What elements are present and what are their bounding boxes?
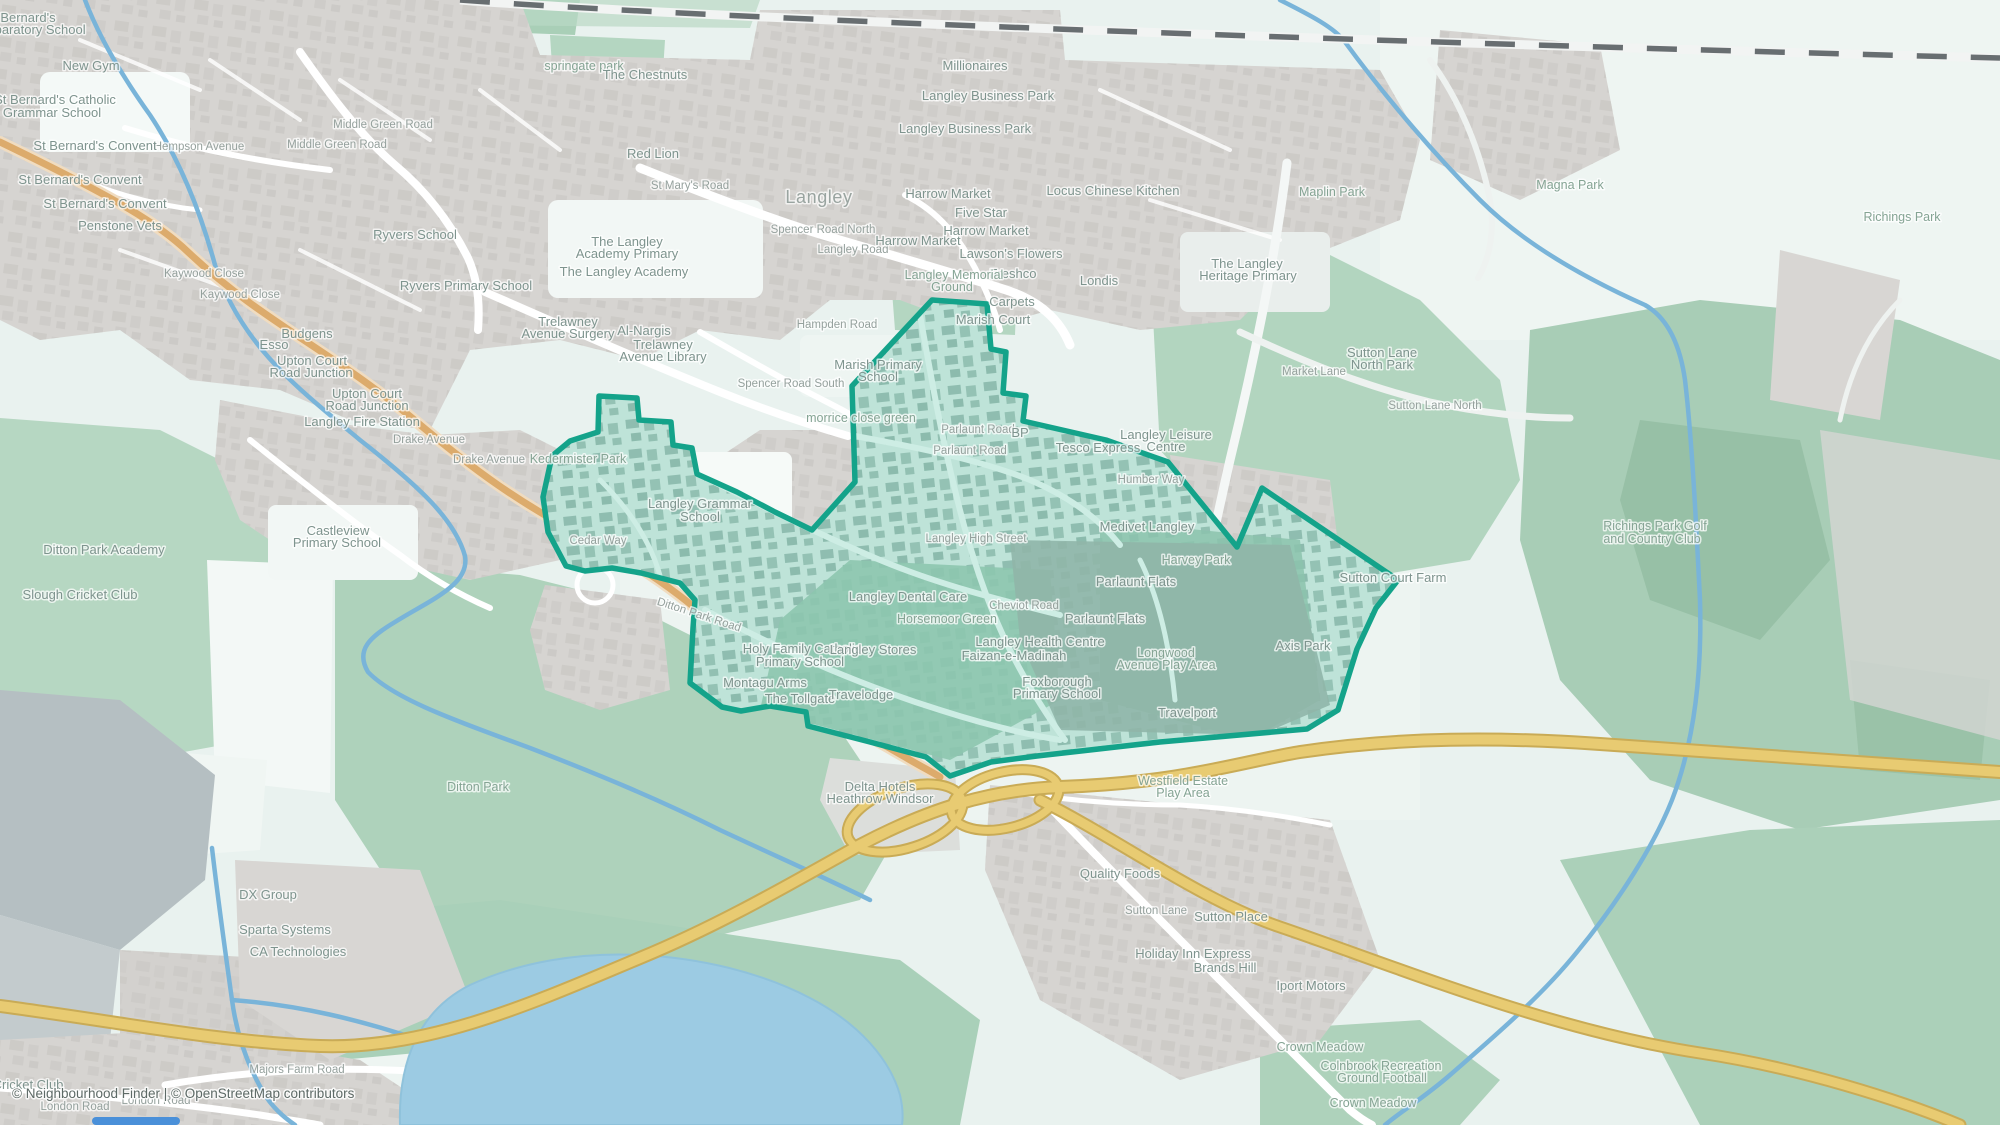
map-label: Faizan-e-Madinah	[962, 648, 1067, 663]
map-label: School	[858, 369, 898, 384]
map-label: New Gym	[62, 58, 119, 73]
map-label: Sparta Systems	[239, 922, 331, 937]
map-label: Primary School	[1013, 686, 1101, 701]
map-label: Primary School	[293, 535, 381, 550]
map-label: and Country Club	[1603, 532, 1700, 546]
map-label: Richings Park Golf	[1603, 519, 1707, 533]
map-label: Cedar Way	[569, 535, 626, 547]
map-label: Sutton Lane North	[1388, 400, 1481, 412]
map-label: Drake Avenue	[453, 454, 525, 466]
map-label: Parlaunt Road	[941, 424, 1015, 436]
map-label: BP	[1011, 425, 1028, 440]
map-label: Ground	[931, 280, 973, 294]
map-label: Axis Park	[1276, 638, 1331, 653]
map-label: Sutton Place	[1194, 909, 1268, 924]
map-label: Magna Park	[1536, 178, 1604, 192]
map-label: Sutton Lane	[1125, 905, 1187, 917]
map-label: Majors Farm Road	[249, 1064, 344, 1076]
map-label: Slough Cricket Club	[23, 587, 138, 602]
map-label: Maplin Park	[1299, 185, 1366, 199]
map-label: Academy Primary	[576, 246, 679, 261]
map-label: St Bernard's Convent	[18, 172, 142, 187]
map-label: Marish Court	[956, 312, 1031, 327]
map-label: Cheviot Road	[989, 600, 1059, 612]
map-label: Road Junction	[325, 398, 408, 413]
map-label: Millionaires	[942, 58, 1008, 73]
map-label: Ditton Park Academy	[43, 542, 165, 557]
partial-ui-chip[interactable]	[92, 1117, 180, 1125]
map-label: Budgens	[281, 326, 333, 341]
map-label: Lawson's Flowers	[960, 246, 1063, 261]
map-label: Ditton Park	[447, 780, 510, 794]
map-label: Five Star	[955, 205, 1008, 220]
map-stage: St Bernard'sPreparatory SchoolNew GymSt …	[0, 0, 2000, 1125]
map-label: Hempson Avenue	[154, 141, 245, 153]
map-label: Medivet Langley	[1100, 519, 1195, 534]
map-label: Langley Stores	[830, 642, 917, 657]
map-label: Londis	[1080, 273, 1119, 288]
map-label: Quality Foods	[1080, 866, 1161, 881]
map-label: Travelodge	[829, 687, 894, 702]
map-label: Parlaunt Flats	[1065, 611, 1146, 626]
map-canvas[interactable]: St Bernard'sPreparatory SchoolNew GymSt …	[0, 0, 2000, 1125]
map-label: Drake Avenue	[393, 434, 465, 446]
map-label: Sutton Court Farm	[1340, 570, 1447, 585]
map-label: Brands Hill	[1194, 960, 1257, 975]
map-label: St Bernard's Convent	[33, 138, 157, 153]
map-label: Parlaunt Road	[933, 445, 1007, 457]
map-label: Spencer Road South	[738, 378, 845, 390]
map-label: Langley Business Park	[899, 121, 1032, 136]
map-label: Al-Nargis	[617, 323, 671, 338]
map-label: St Bernard's Convent	[43, 196, 167, 211]
map-label: Langley	[785, 187, 852, 207]
map-label: Tesco Express	[1056, 440, 1141, 455]
map-label: Horsemoor Green	[897, 612, 997, 626]
map-label: Holiday Inn Express	[1135, 946, 1251, 961]
map-label: Langley High Street	[925, 533, 1027, 545]
map-label: Ground Football	[1337, 1071, 1427, 1085]
map-label: Avenue Play Area	[1116, 658, 1215, 672]
map-label: Centre	[1146, 439, 1185, 454]
map-label: North Park	[1351, 357, 1414, 372]
map-label: Langley Health Centre	[975, 634, 1104, 649]
map-label: Ryvers Primary School	[400, 278, 532, 293]
map-label: Esso	[260, 337, 289, 352]
map-label: Locus Chinese Kitchen	[1047, 183, 1180, 198]
map-label: Parlaunt Flats	[1096, 574, 1177, 589]
map-label: Crown Meadow	[1277, 1040, 1365, 1054]
map-label: Montagu Arms	[723, 675, 807, 690]
map-label: Road Junction	[269, 365, 352, 380]
map-label: Harrow Market	[905, 186, 991, 201]
map-label: The Langley Academy	[560, 264, 689, 279]
map-label: Hampden Road	[797, 319, 878, 331]
map-label: Heathrow Windsor	[827, 791, 935, 806]
map-label: Middle Green Road	[287, 139, 387, 151]
map-attribution: © Neighbourhood Finder | © OpenStreetMap…	[12, 1086, 355, 1101]
map-label: Langley Business Park	[922, 88, 1055, 103]
map-label: Avenue Library	[619, 349, 707, 364]
map-label: Spencer Road North	[771, 224, 876, 236]
map-label: London Road	[40, 1101, 109, 1113]
map-label: Richings Park	[1863, 210, 1941, 224]
map-label: Ryvers School	[373, 227, 457, 242]
map-label: morrice close green	[806, 411, 916, 425]
map-label: Preparatory School	[0, 22, 86, 37]
map-label: Iport Motors	[1276, 978, 1346, 993]
map-label: Kedermister Park	[530, 452, 627, 466]
map-label: Kaywood Close	[164, 268, 244, 280]
map-label: School	[680, 509, 720, 524]
map-label: Harrow Market	[943, 223, 1029, 238]
map-label: The Tollgate	[765, 691, 836, 706]
map-label: Humber Way	[1118, 474, 1185, 486]
map-label: CA Technologies	[250, 944, 347, 959]
map-label: Play Area	[1156, 786, 1210, 800]
map-label: Crown Meadow	[1330, 1096, 1418, 1110]
map-label: Red Lion	[627, 146, 679, 161]
map-label: Avenue Surgery	[522, 326, 615, 341]
map-label: Kaywood Close	[200, 289, 280, 301]
map-label: Travelport	[1158, 705, 1216, 720]
map-label: The Chestnuts	[603, 67, 688, 82]
map-label: St Mary's Road	[651, 180, 729, 192]
map-label: DX Group	[239, 887, 297, 902]
map-label: Heritage Primary	[1199, 268, 1297, 283]
map-label: Langley Fire Station	[304, 414, 420, 429]
map-label: Middle Green Road	[333, 119, 433, 131]
map-label: Penstone Vets	[78, 218, 162, 233]
map-label: Market Lane	[1282, 366, 1346, 378]
map-label: Grammar School	[3, 105, 101, 120]
map-label: Harvey Park	[1162, 553, 1232, 567]
map-label: Langley Dental Care	[849, 589, 968, 604]
map-label: Carpets	[989, 294, 1035, 309]
